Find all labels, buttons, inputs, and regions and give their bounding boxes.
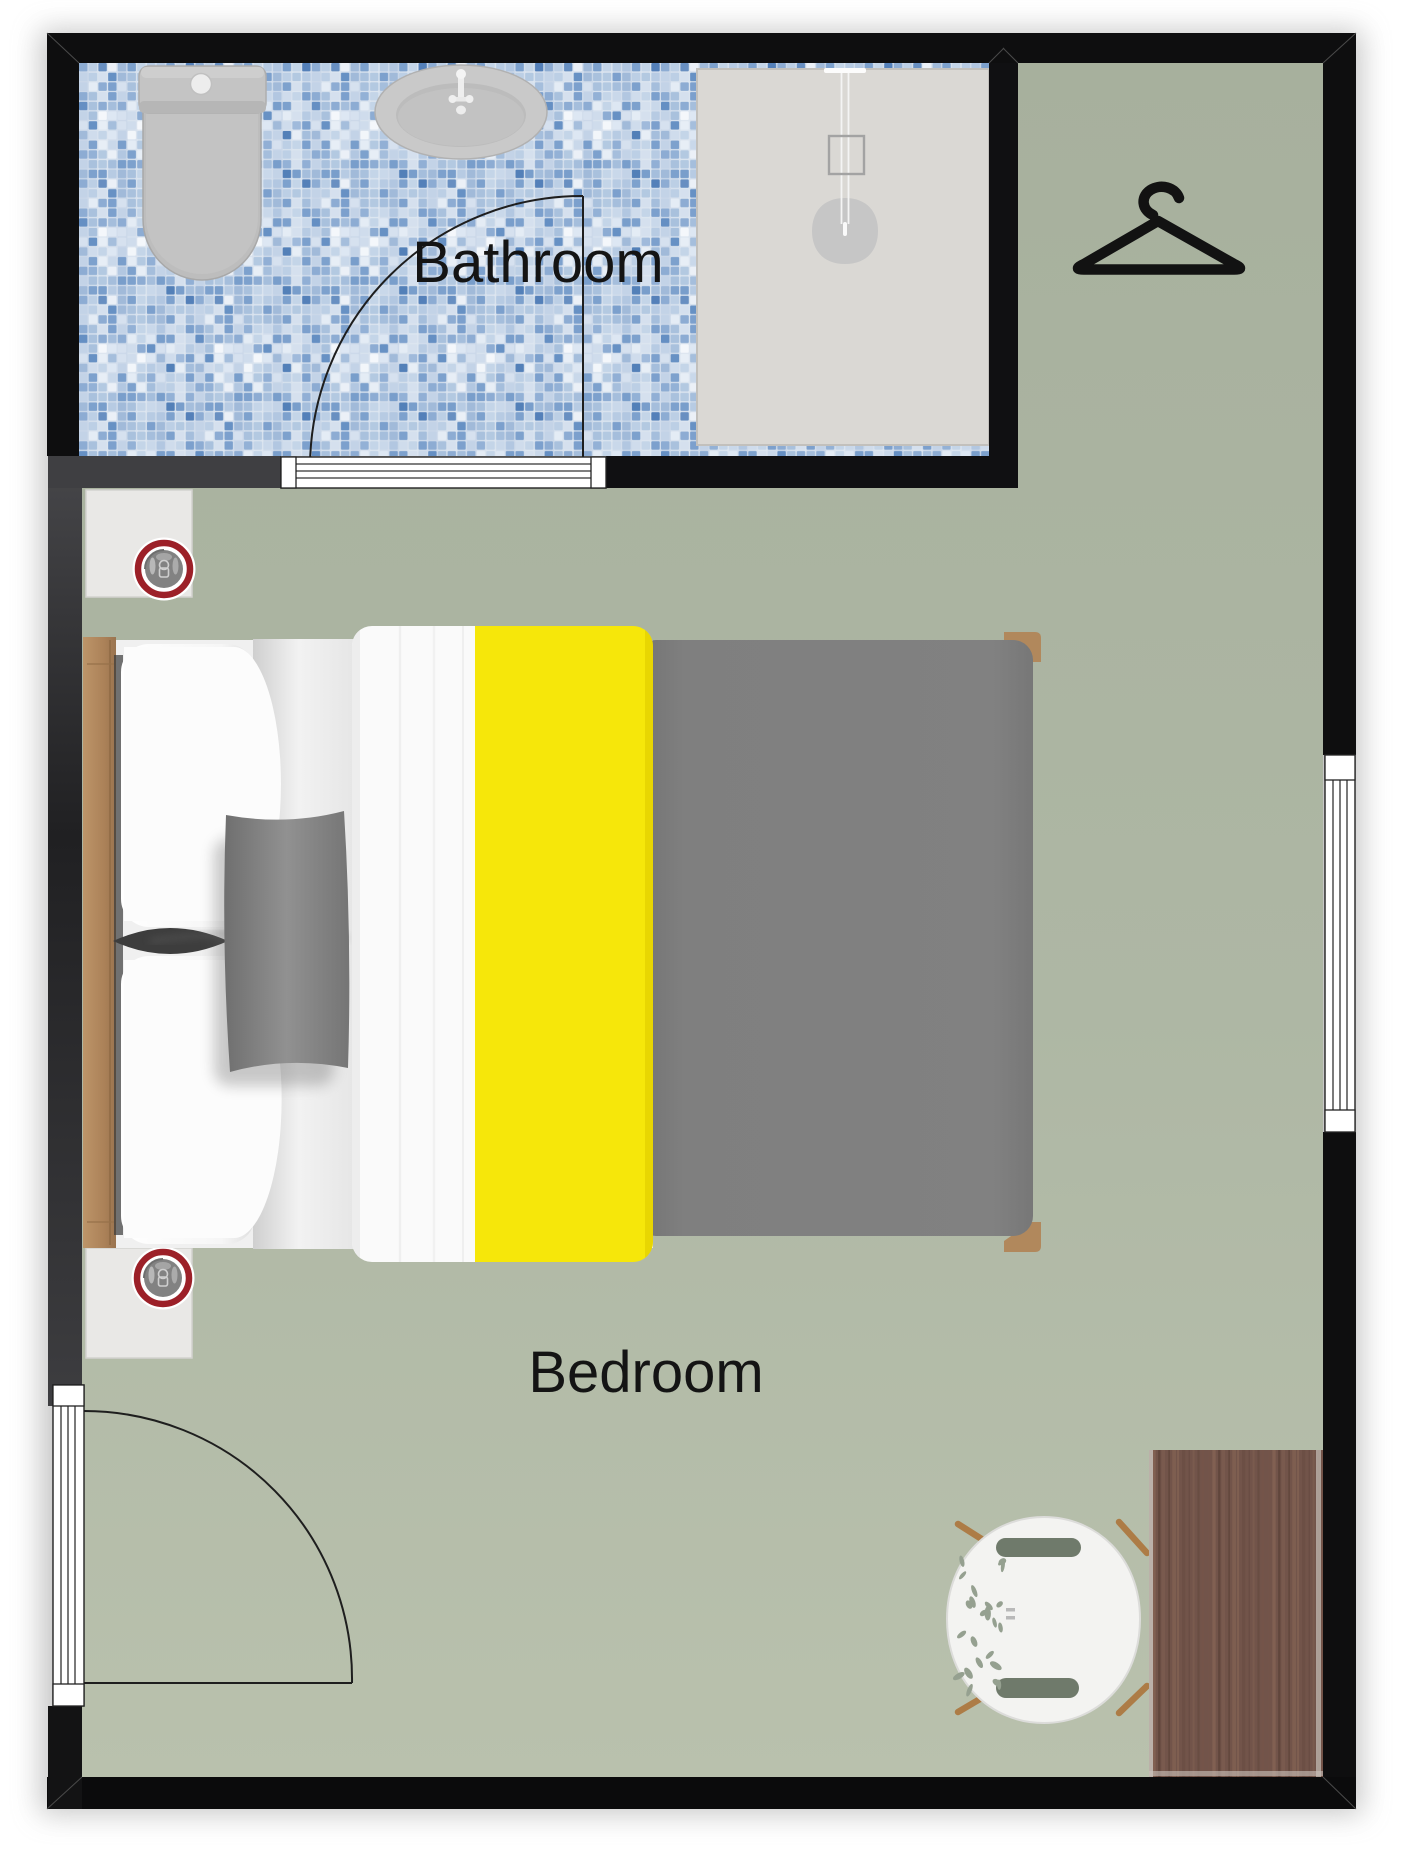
svg-text:Bathroom: Bathroom — [412, 230, 663, 295]
svg-text:Bedroom: Bedroom — [528, 1340, 763, 1405]
